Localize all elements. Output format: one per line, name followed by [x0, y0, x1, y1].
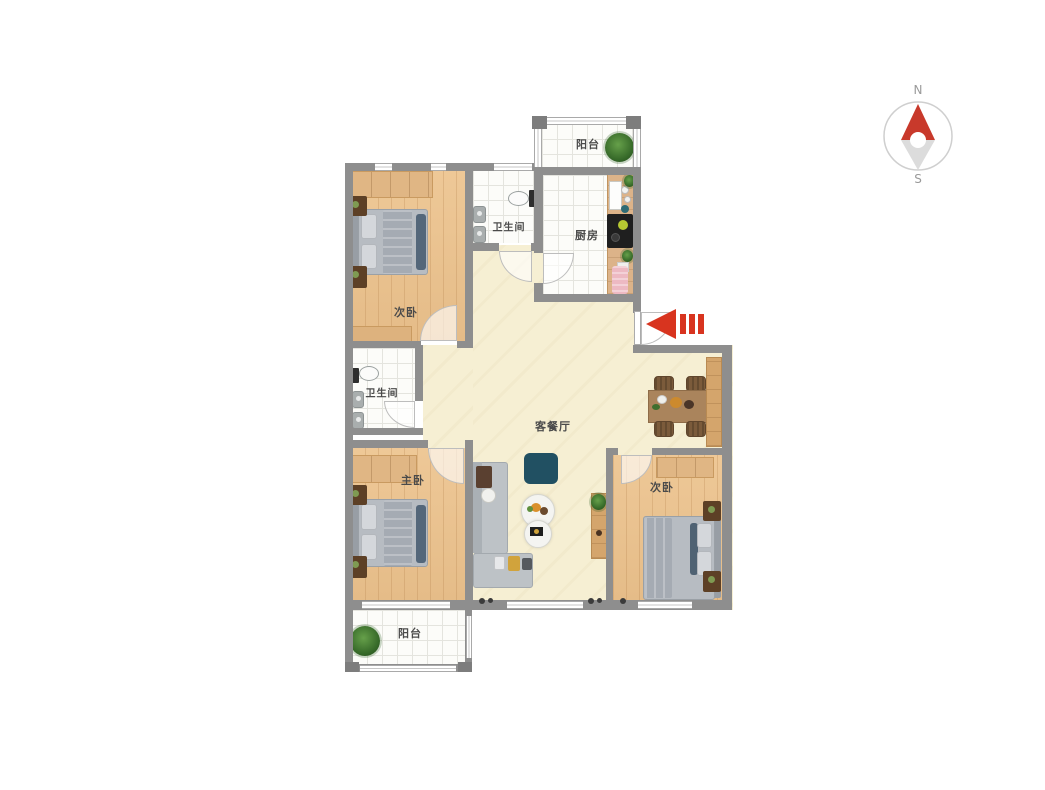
sill-decor-icon — [588, 598, 594, 604]
compass: N S — [868, 78, 968, 188]
room-label-bedroom-top-left: 次卧 — [394, 304, 418, 320]
bed-blanket — [645, 518, 672, 598]
bedroom-tl-window-north-1 — [375, 163, 392, 171]
compass-south-label: S — [914, 172, 922, 186]
wall-kitchen-north — [534, 167, 641, 175]
stove-icon — [607, 214, 633, 248]
bed-blanket — [384, 500, 412, 566]
bowl-icon — [621, 205, 629, 213]
plant-icon — [605, 133, 634, 162]
room-label-kitchen: 厨房 — [575, 227, 599, 243]
wall-kitchen-south — [534, 294, 641, 302]
room-label-bedroom-right: 次卧 — [650, 479, 674, 495]
dining-chair — [654, 421, 674, 437]
sofa-side-table — [476, 466, 492, 488]
nightstand — [703, 501, 721, 521]
sofa-pillow — [494, 556, 505, 570]
bedroom-tl-window-north-2 — [431, 163, 446, 171]
nightstand — [703, 571, 721, 592]
entry-door-leaf — [634, 311, 641, 345]
kitchen-sink — [609, 181, 622, 210]
sill-decor-icon — [488, 598, 493, 603]
food-icon — [670, 397, 682, 408]
sill-decor-icon — [597, 598, 602, 603]
wall-bathroom-mid-south — [345, 428, 423, 435]
sofa-pillow — [508, 556, 520, 571]
sill-decor-icon — [479, 598, 485, 604]
water-heater — [612, 266, 628, 294]
bed-pillow — [361, 214, 377, 239]
dining-chair — [686, 421, 706, 437]
plant-icon — [622, 250, 633, 262]
wall-bedroom-tl-south — [345, 341, 421, 348]
armchair — [524, 453, 558, 484]
wall-bedroom-right-north-b — [652, 448, 732, 455]
balcony-top-post-ne — [626, 116, 641, 129]
wall-kitchen-west-upper — [534, 167, 543, 253]
wall-entry-south — [633, 345, 732, 353]
tray-item — [534, 529, 539, 534]
wall-bedroom-master-east — [465, 440, 473, 610]
compass-north-label: N — [914, 83, 923, 97]
cabinet-item — [596, 530, 602, 536]
lamp-icon — [481, 488, 496, 503]
sink-icon — [473, 206, 486, 223]
toilet-icon — [359, 366, 379, 381]
sill-decor-icon — [620, 598, 626, 604]
bathroom-top-window-north — [494, 163, 532, 171]
wall-bedroom-tl-south-stub — [457, 341, 473, 348]
food-icon — [527, 506, 533, 512]
room-label-balcony-bottom: 阳台 — [398, 625, 422, 641]
bed-cushion — [416, 214, 426, 270]
bed-blanket — [383, 210, 412, 274]
wall-bathroom-top-south-a — [465, 243, 499, 251]
entry-arrow-icon — [646, 306, 710, 346]
plate-icon — [657, 395, 667, 404]
wall-bedroom-right-west — [606, 448, 613, 610]
balcony-top-window-north — [547, 117, 626, 125]
balcony-top-window-west — [534, 129, 542, 167]
toilet-icon — [508, 191, 529, 206]
hall-sideboard — [706, 357, 722, 447]
dish-icon — [621, 186, 629, 194]
room-label-bathroom-mid: 卫生间 — [366, 385, 399, 400]
wardrobe — [656, 457, 714, 478]
food-icon — [540, 507, 548, 515]
room-label-balcony-top: 阳台 — [576, 136, 600, 152]
balcony-top-post-nw — [532, 116, 547, 129]
room-label-bedroom-master: 主卧 — [401, 472, 425, 488]
floor-plan-canvas: N S 阳台 厨房 卫生间 次卧 卫生间 客餐厅 主卧 次卧 阳台 — [0, 0, 1045, 790]
balcony-bottom-post-se — [458, 662, 472, 672]
balcony-top-window-east — [633, 129, 641, 167]
bedroom-master-window-south — [362, 601, 450, 609]
sink-icon — [352, 412, 364, 429]
wall-outer-west — [345, 163, 353, 672]
sink-icon — [352, 391, 364, 408]
bed-cushion — [416, 505, 426, 563]
wardrobe — [351, 171, 433, 198]
balcony-bottom-window-east — [466, 616, 472, 658]
stove-burner — [611, 233, 620, 242]
room-label-living-dining: 客餐厅 — [535, 418, 571, 434]
toilet-tank — [352, 368, 359, 383]
wall-bedroom-tl-east — [465, 163, 473, 348]
plant-icon — [591, 494, 606, 510]
wall-outer-east — [722, 345, 732, 608]
wall-kitchen-east — [633, 167, 641, 313]
room-label-bathroom-top: 卫生间 — [493, 219, 526, 234]
balcony-bottom-window-south — [360, 665, 456, 672]
sofa-pillow — [522, 558, 532, 570]
bedroom-right-window-south — [638, 601, 692, 609]
food-icon — [684, 400, 694, 409]
stove-burner — [618, 220, 628, 230]
balcony-bottom-post-sw — [345, 662, 359, 672]
bed-pillow — [361, 504, 377, 530]
plant-icon — [350, 626, 380, 656]
bed-pillow — [697, 523, 712, 548]
dish-icon — [624, 196, 631, 203]
wall-bathroom-mid-east — [415, 345, 423, 401]
living-window-south — [507, 601, 583, 609]
food-icon — [652, 404, 660, 410]
wall-bedroom-master-north — [345, 440, 428, 448]
sink-icon — [473, 226, 486, 243]
living-dining-floor-west — [423, 345, 473, 448]
